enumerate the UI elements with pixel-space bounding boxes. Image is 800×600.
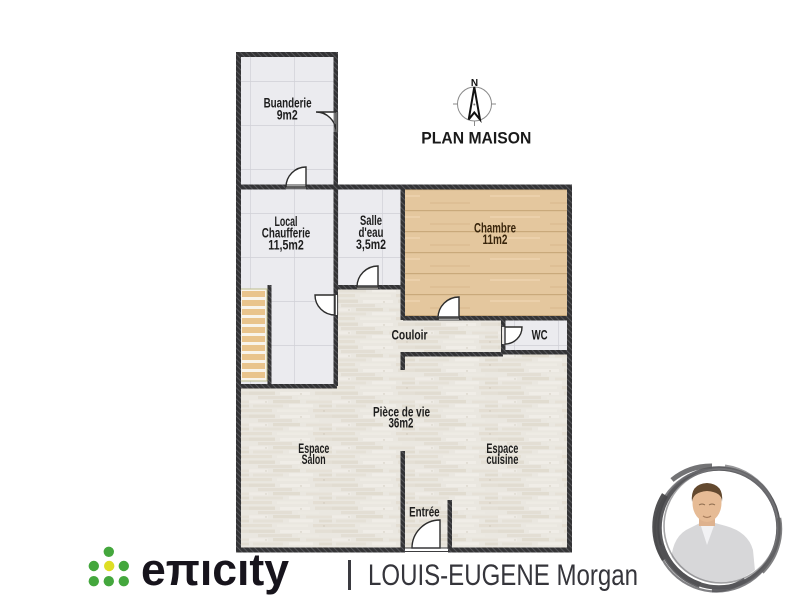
svg-text:Couloir: Couloir xyxy=(392,328,429,343)
svg-text:WC: WC xyxy=(532,328,548,343)
svg-text:3,5m2: 3,5m2 xyxy=(356,237,386,252)
svg-text:cuisine: cuisine xyxy=(486,452,518,467)
svg-text:11m2: 11m2 xyxy=(483,232,508,247)
svg-text:Entrée: Entrée xyxy=(409,504,440,519)
svg-text:N: N xyxy=(471,78,478,89)
svg-text:PLAN MAISON: PLAN MAISON xyxy=(421,129,531,148)
svg-text:9m2: 9m2 xyxy=(277,108,298,123)
svg-text:eπıcıty: eπıcıty xyxy=(141,544,289,595)
svg-text:Salon: Salon xyxy=(302,452,326,467)
svg-text:LOUIS-EUGENE Morgan: LOUIS-EUGENE Morgan xyxy=(368,559,638,592)
svg-text:11,5m2: 11,5m2 xyxy=(268,238,304,253)
svg-text:36m2: 36m2 xyxy=(389,415,414,430)
